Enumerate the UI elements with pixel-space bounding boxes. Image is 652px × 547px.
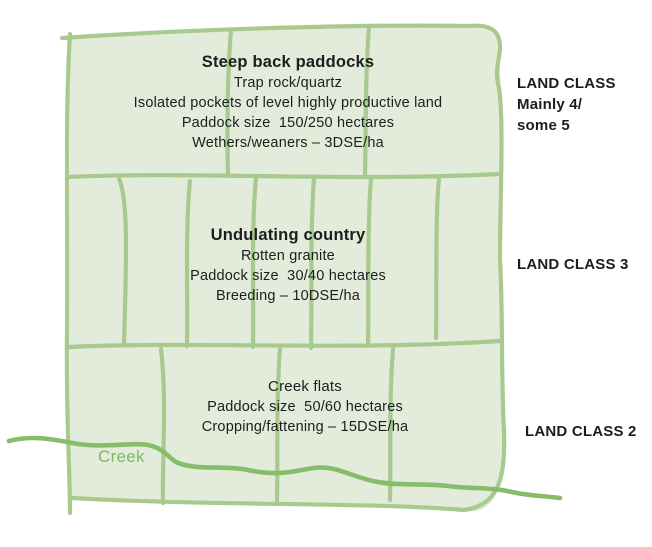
section-steep-back-paddocks: Steep back paddocks Trap rock/quartz Iso… — [75, 51, 501, 153]
land-class-line: LAND CLASS 2 — [525, 421, 637, 442]
section-heading: Steep back paddocks — [75, 51, 501, 73]
section-heading: Creek flats — [92, 377, 518, 397]
land-class-line: LAND CLASS — [517, 73, 616, 94]
land-class-line: LAND CLASS 3 — [517, 254, 629, 275]
land-class-label-4-5: LAND CLASS Mainly 4/ some 5 — [517, 73, 616, 136]
section-line: Paddock size 150/250 hectares — [75, 113, 501, 133]
section-line: Paddock size 50/60 hectares — [92, 397, 518, 417]
section-line: Isolated pockets of level highly product… — [75, 93, 501, 113]
land-class-label-3: LAND CLASS 3 — [517, 254, 629, 275]
section-line: Cropping/fattening – 15DSE/ha — [92, 417, 518, 437]
farm-land-class-diagram: Steep back paddocks Trap rock/quartz Iso… — [0, 0, 652, 547]
land-class-line: Mainly 4/ — [517, 94, 616, 115]
divider-top-middle — [68, 174, 499, 177]
section-line: Trap rock/quartz — [75, 73, 501, 93]
section-heading: Undulating country — [75, 224, 501, 246]
section-undulating-country: Undulating country Rotten granite Paddoc… — [75, 224, 501, 306]
section-line: Paddock size 30/40 hectares — [75, 266, 501, 286]
creek-label: Creek — [98, 447, 145, 467]
land-class-line: some 5 — [517, 115, 616, 136]
land-class-label-2: LAND CLASS 2 — [525, 421, 637, 442]
section-line: Wethers/weaners – 3DSE/ha — [75, 133, 501, 153]
section-line: Rotten granite — [75, 246, 501, 266]
section-line: Breeding – 10DSE/ha — [75, 286, 501, 306]
section-creek-flats: Creek flats Paddock size 50/60 hectares … — [92, 377, 518, 437]
